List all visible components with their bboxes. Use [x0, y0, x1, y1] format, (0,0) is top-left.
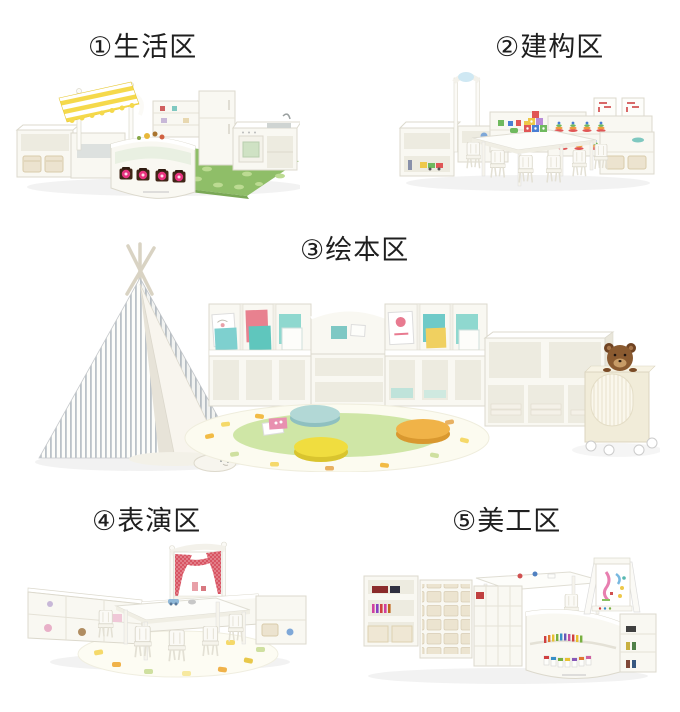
- storage-shelf-baskets: [17, 125, 79, 177]
- puppet-theater: [170, 542, 227, 602]
- scene-art-area: [358, 548, 658, 688]
- label-living-area: ①生活区: [88, 32, 197, 62]
- play-fridge: [199, 91, 235, 165]
- label-performance-area: ④表演区: [92, 506, 201, 536]
- picture-frames: [594, 98, 644, 116]
- pouf-orange: [396, 419, 450, 444]
- hutch-shelf: [153, 101, 203, 137]
- tray-drawer-unit: [420, 580, 472, 658]
- right-corner-shelf: [256, 596, 306, 644]
- pouf-blue: [290, 405, 340, 427]
- cubby-grid-unit: [474, 586, 522, 666]
- curved-counter-jars: [111, 137, 195, 198]
- curved-corner-shelf: [311, 310, 387, 406]
- book-display-right: [385, 304, 487, 406]
- scene-living-area: [15, 74, 300, 199]
- label-art-area: ⑤美工区: [452, 506, 561, 536]
- play-kitchen: [233, 114, 300, 170]
- label-construction-area: ②建构区: [495, 32, 604, 62]
- right-corner-shelf: [620, 614, 656, 672]
- curved-art-shelf: [526, 610, 620, 679]
- right-low-shelf: [600, 132, 654, 174]
- scene-performance-area: [20, 540, 310, 680]
- pouf-yellow: [294, 437, 348, 462]
- floor-shadow-cart: [572, 443, 660, 457]
- scene-picture-book-area: [25, 242, 660, 472]
- book-display-left: [209, 304, 311, 406]
- scene-construction-area: [398, 70, 658, 195]
- catalog-image: ①生活区 ②建构区 ③绘本区 ④表演区 ⑤美工区: [0, 0, 680, 712]
- corner-shelf: [400, 122, 460, 176]
- art-easel: [584, 558, 640, 614]
- tall-supply-shelf: [364, 576, 418, 646]
